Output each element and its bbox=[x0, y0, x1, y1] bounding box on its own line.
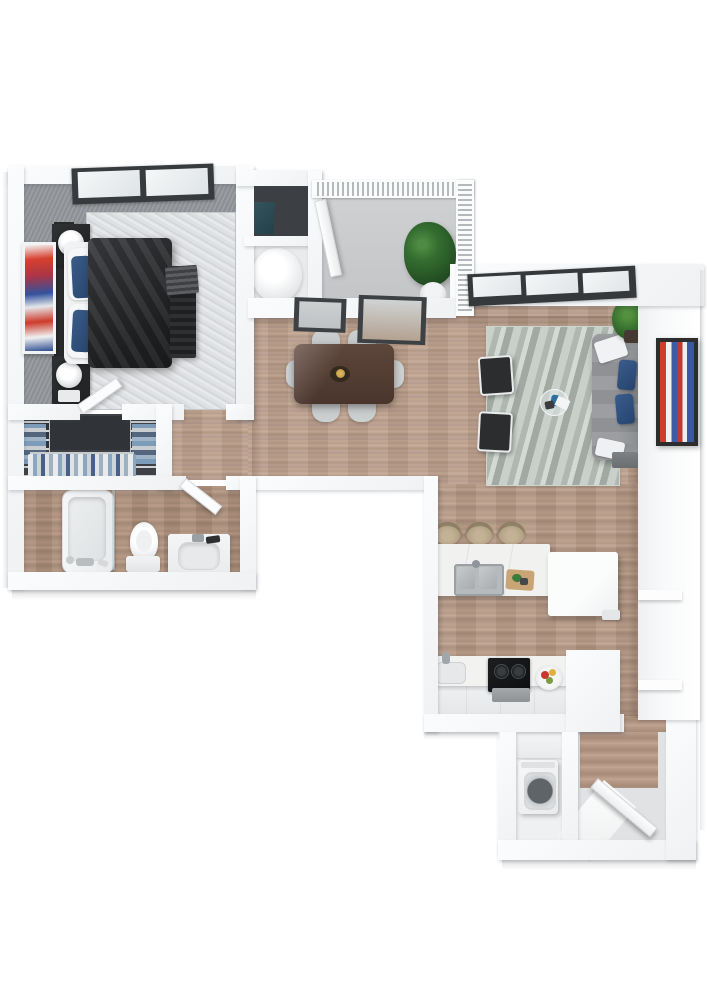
living-wall-art bbox=[656, 338, 698, 446]
balcony-plant bbox=[404, 222, 456, 286]
sofa-pillow-blue-2 bbox=[615, 393, 636, 424]
dining-centerpiece-bowl bbox=[336, 369, 345, 378]
living-window-glass-3 bbox=[583, 271, 630, 293]
shadow-entry-bottom bbox=[502, 860, 696, 870]
wall-courtyard-top bbox=[254, 476, 438, 490]
living-window-glass-1 bbox=[473, 275, 522, 297]
refrigerator-handle bbox=[602, 610, 620, 620]
wall-courtyard-right bbox=[424, 476, 438, 732]
closet-upper-shadow bbox=[44, 416, 130, 450]
vanity-faucet bbox=[192, 534, 204, 542]
counter-prep-sink bbox=[436, 662, 466, 684]
water-heater bbox=[252, 248, 302, 302]
wall-bedroom-bottom-c bbox=[226, 404, 254, 420]
shadow-bathroom-bottom bbox=[12, 590, 256, 600]
hallway-floor bbox=[162, 410, 256, 480]
wall-bedroom-bottom-b bbox=[122, 404, 184, 420]
cutting-board-item bbox=[520, 578, 528, 585]
balcony-door-window-glass bbox=[362, 299, 421, 341]
shadow-right-wall bbox=[700, 270, 706, 830]
laundry-shelf bbox=[516, 734, 562, 758]
shower-glass-panel bbox=[112, 490, 115, 570]
table-lamp-bottom bbox=[56, 362, 82, 388]
bath-accessory-1 bbox=[66, 556, 74, 564]
nightstand-tray bbox=[58, 390, 80, 402]
counter-faucet bbox=[442, 652, 450, 664]
wall-bathroom-top-a bbox=[8, 476, 186, 490]
bar-stool-1 bbox=[434, 522, 461, 545]
wall-right-main bbox=[638, 264, 700, 720]
stove-burner-2 bbox=[511, 664, 526, 679]
wall-kitchen-stub bbox=[566, 650, 620, 732]
wall-laundry-divider bbox=[562, 732, 578, 844]
refrigerator bbox=[548, 552, 618, 616]
closet-hanging-clothes bbox=[28, 454, 136, 478]
shadow-kitchen-wall-bottom bbox=[424, 732, 500, 740]
bedroom-window-glass-2 bbox=[146, 168, 209, 196]
wall-bedroom-left bbox=[8, 166, 24, 588]
vanity-basin bbox=[178, 542, 220, 570]
bathtub-basin bbox=[68, 497, 106, 561]
bar-stool-2 bbox=[466, 522, 493, 545]
wall-entry-right bbox=[666, 714, 696, 860]
wall-niche-fin-1 bbox=[638, 590, 682, 600]
washer-door bbox=[524, 772, 556, 810]
bedroom-window-glass-1 bbox=[78, 170, 141, 198]
living-window-glass-2 bbox=[526, 273, 579, 296]
bedroom-wall-art bbox=[22, 242, 56, 354]
wall-entry-left bbox=[498, 732, 516, 856]
oven-front bbox=[492, 688, 530, 702]
wall-niche-fin-2 bbox=[638, 680, 682, 690]
fruit-yellow bbox=[549, 669, 556, 676]
island-faucet bbox=[472, 560, 480, 568]
pouf-2 bbox=[477, 411, 513, 453]
utility-shelf-divider bbox=[244, 236, 314, 246]
toilet-tank bbox=[126, 556, 160, 572]
sofa-pillow-blue-1 bbox=[617, 359, 638, 390]
stove-burner-1 bbox=[494, 664, 509, 679]
island-sink-basin-2 bbox=[479, 567, 497, 589]
sofa-side-table bbox=[612, 452, 638, 468]
bed-duvet bbox=[88, 238, 172, 368]
balcony-railing-top bbox=[312, 180, 474, 198]
toilet-seat bbox=[136, 530, 152, 552]
bar-stool-3 bbox=[498, 522, 525, 545]
washer-controls bbox=[521, 762, 555, 768]
fruit-green bbox=[546, 677, 553, 684]
bench-throw bbox=[165, 265, 199, 296]
island-sink-basin-1 bbox=[457, 567, 475, 589]
wall-bedroom-right bbox=[236, 166, 254, 420]
tub-faucet bbox=[76, 558, 94, 566]
entry-wood-floor bbox=[580, 732, 658, 788]
wall-bedroom-bottom-a bbox=[8, 404, 80, 420]
wall-bathroom-bottom bbox=[8, 572, 256, 590]
pouf-1 bbox=[478, 355, 515, 396]
floorplan-canvas bbox=[0, 0, 707, 1000]
shadow-bedroom-left bbox=[2, 172, 8, 588]
balcony-window-glass bbox=[299, 301, 342, 328]
